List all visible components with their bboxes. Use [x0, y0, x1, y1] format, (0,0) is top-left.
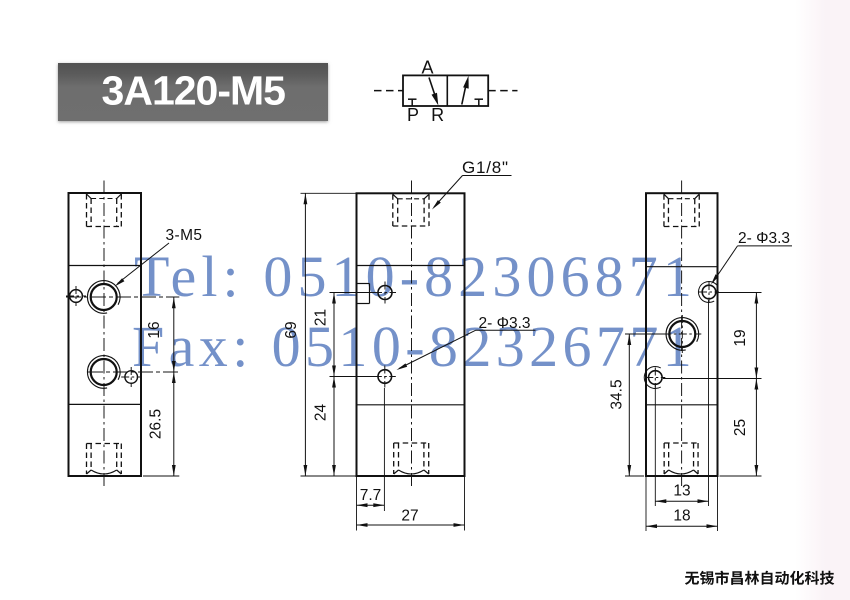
svg-text:3-M5: 3-M5	[166, 227, 203, 244]
svg-text:34.5: 34.5	[609, 379, 626, 409]
svg-text:21: 21	[313, 309, 330, 326]
svg-text:2- Φ3.3: 2- Φ3.3	[738, 230, 790, 247]
svg-text:P: P	[407, 105, 419, 125]
svg-text:27: 27	[401, 508, 418, 525]
svg-text:69: 69	[283, 321, 300, 338]
svg-text:7.7: 7.7	[360, 487, 382, 504]
svg-text:16: 16	[146, 321, 163, 338]
svg-text:2- Φ3.3: 2- Φ3.3	[479, 315, 531, 332]
svg-text:26.5: 26.5	[148, 409, 165, 439]
svg-text:A: A	[421, 58, 433, 78]
svg-text:13: 13	[673, 483, 690, 500]
svg-text:R: R	[431, 105, 444, 125]
svg-text:G1/8": G1/8"	[462, 158, 509, 177]
svg-text:19: 19	[732, 329, 749, 346]
svg-text:25: 25	[732, 419, 749, 436]
svg-text:24: 24	[313, 404, 330, 422]
svg-text:18: 18	[673, 508, 690, 525]
